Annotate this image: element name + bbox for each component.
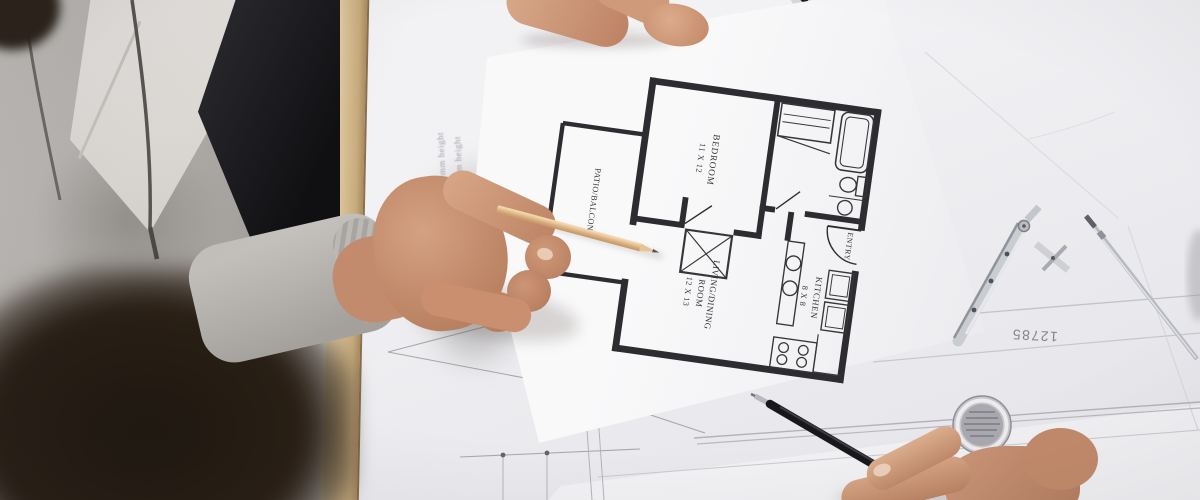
photo-scene: 12785 300mm height 900mm height <box>0 0 1200 500</box>
lead-holder-ring <box>1099 232 1104 238</box>
lead-holder <box>1085 216 1197 359</box>
compass-screw <box>989 279 994 284</box>
writing-hand <box>815 428 1085 500</box>
compass-crossbar-screw <box>1051 256 1055 260</box>
pointing-hand-group <box>215 140 695 375</box>
knuckle <box>1023 428 1098 490</box>
compass-screw <box>972 308 977 313</box>
compass-leg-edge <box>954 223 1018 338</box>
edge-smudge <box>1187 229 1200 321</box>
compass-leg-slot <box>966 232 1024 334</box>
lead-holder-tip <box>1086 216 1095 227</box>
compass-head <box>1027 207 1039 220</box>
pencil-graphite <box>652 249 660 254</box>
compass-hinge-pin <box>1022 224 1026 228</box>
compass-screw <box>1005 252 1010 257</box>
drafting-compass <box>954 207 1068 341</box>
